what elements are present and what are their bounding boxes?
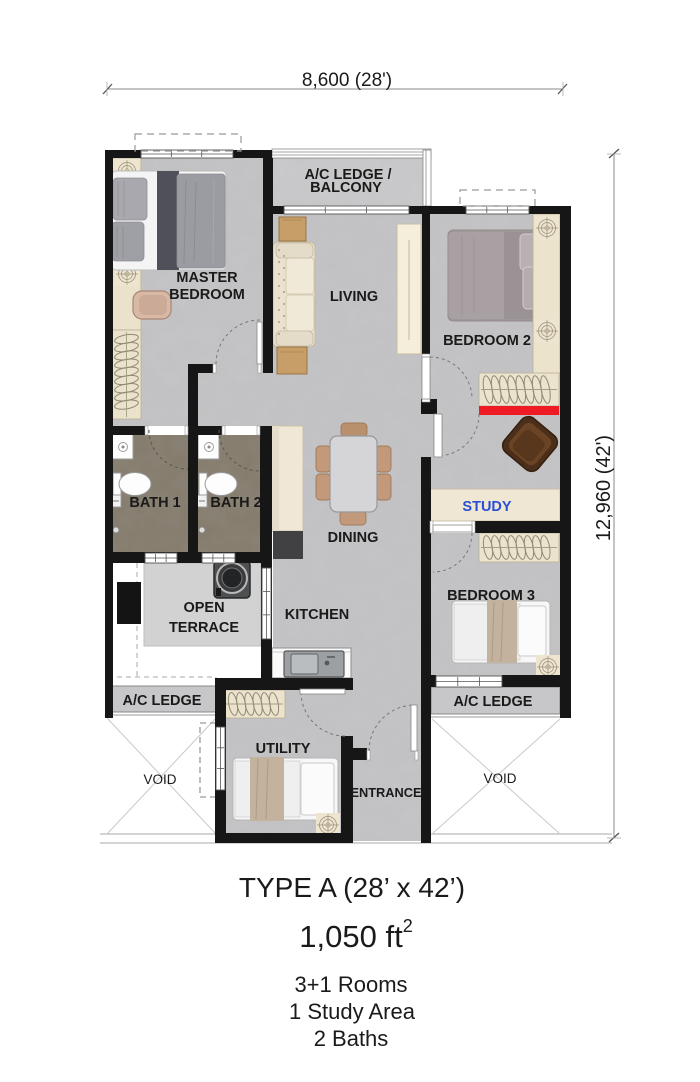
- svg-text:KITCHEN: KITCHEN: [285, 607, 349, 623]
- svg-text:VOID: VOID: [483, 771, 516, 786]
- svg-text:BEDROOM 2: BEDROOM 2: [443, 333, 531, 349]
- svg-text:1,050 ft2: 1,050 ft2: [299, 916, 412, 954]
- svg-text:A/C LEDGE: A/C LEDGE: [454, 694, 533, 710]
- svg-text:BEDROOM 3: BEDROOM 3: [447, 588, 535, 604]
- svg-text:12,960 (42'): 12,960 (42'): [593, 435, 615, 541]
- svg-text:TYPE A (28’ x 42’): TYPE A (28’ x 42’): [239, 872, 465, 903]
- svg-text:BEDROOM: BEDROOM: [169, 287, 245, 303]
- svg-text:A/C LEDGE: A/C LEDGE: [123, 693, 202, 709]
- svg-text:1 Study Area: 1 Study Area: [289, 999, 416, 1024]
- svg-text:UTILITY: UTILITY: [256, 741, 311, 757]
- svg-text:BATH 2: BATH 2: [210, 495, 261, 511]
- svg-text:BALCONY: BALCONY: [310, 180, 382, 196]
- svg-text:MASTER: MASTER: [176, 270, 238, 286]
- svg-text:8,600 (28'): 8,600 (28'): [302, 70, 392, 91]
- svg-text:STUDY: STUDY: [462, 499, 511, 515]
- svg-text:3+1 Rooms: 3+1 Rooms: [294, 972, 407, 997]
- svg-text:DINING: DINING: [328, 530, 379, 546]
- svg-text:ENTRANCE: ENTRANCE: [350, 785, 422, 800]
- svg-text:OPEN: OPEN: [183, 600, 224, 616]
- svg-text:2 Baths: 2 Baths: [314, 1026, 389, 1051]
- svg-text:TERRACE: TERRACE: [169, 620, 239, 636]
- svg-text:LIVING: LIVING: [330, 289, 378, 305]
- svg-text:BATH 1: BATH 1: [129, 495, 180, 511]
- svg-text:VOID: VOID: [143, 772, 176, 787]
